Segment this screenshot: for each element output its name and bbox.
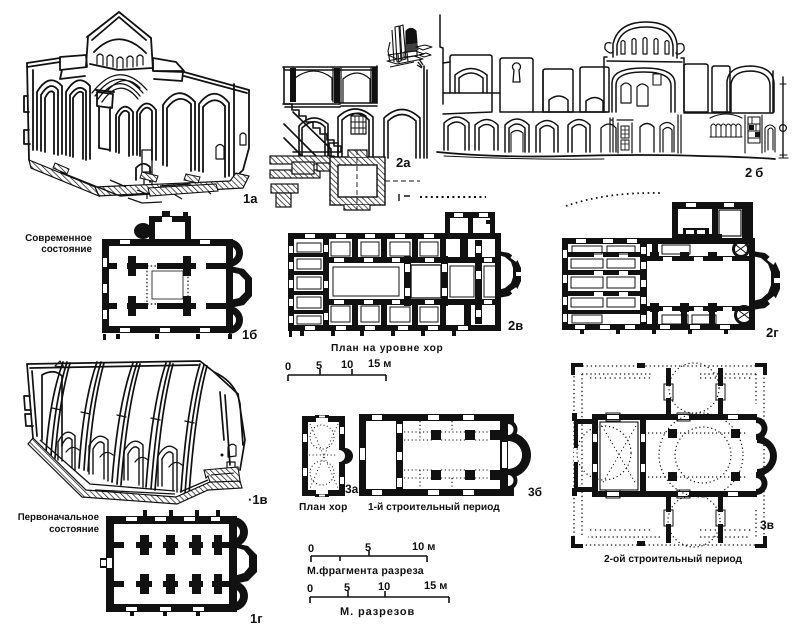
svg-text:1б: 1б xyxy=(242,327,257,342)
svg-text:состояние: состояние xyxy=(41,244,92,255)
svg-text:5: 5 xyxy=(365,542,371,554)
svg-text:·1в: ·1в xyxy=(248,492,268,507)
svg-text:2-ой строительный период: 2-ой строительный период xyxy=(604,554,742,565)
svg-text:3в: 3в xyxy=(760,518,774,532)
svg-text:0: 0 xyxy=(307,583,313,595)
svg-text:3б: 3б xyxy=(528,485,542,499)
svg-text:1г: 1г xyxy=(250,611,263,626)
svg-text:1а: 1а xyxy=(243,191,258,206)
svg-text:М.фрагмента разреза: М.фрагмента разреза xyxy=(307,565,424,577)
svg-text:2б: 2б xyxy=(745,165,766,180)
svg-text:0: 0 xyxy=(308,543,314,555)
svg-text:Первоначальное: Первоначальное xyxy=(18,512,100,523)
svg-text:2г: 2г xyxy=(766,325,779,340)
svg-text:10: 10 xyxy=(341,359,353,371)
svg-text:15 м: 15 м xyxy=(424,580,447,592)
svg-text:0: 0 xyxy=(285,361,291,373)
svg-text:1-й строительный период: 1-й строительный период xyxy=(368,502,500,513)
svg-text:М. разрезов: М. разрезов xyxy=(340,606,415,618)
svg-text:3а: 3а xyxy=(345,482,359,496)
svg-text:План хор: План хор xyxy=(299,502,348,513)
svg-text:15 м: 15 м xyxy=(368,358,391,370)
svg-text:10 м: 10 м xyxy=(412,541,435,553)
svg-text:2в: 2в xyxy=(508,318,523,333)
svg-text:План на уровне хор: План на уровне хор xyxy=(331,343,443,354)
svg-text:5: 5 xyxy=(316,360,322,372)
svg-text:10: 10 xyxy=(378,581,390,593)
svg-text:Современное: Современное xyxy=(25,233,92,244)
svg-text:состояние: состояние xyxy=(49,524,99,535)
svg-text:2а: 2а xyxy=(396,155,411,170)
svg-text:5: 5 xyxy=(344,582,350,594)
